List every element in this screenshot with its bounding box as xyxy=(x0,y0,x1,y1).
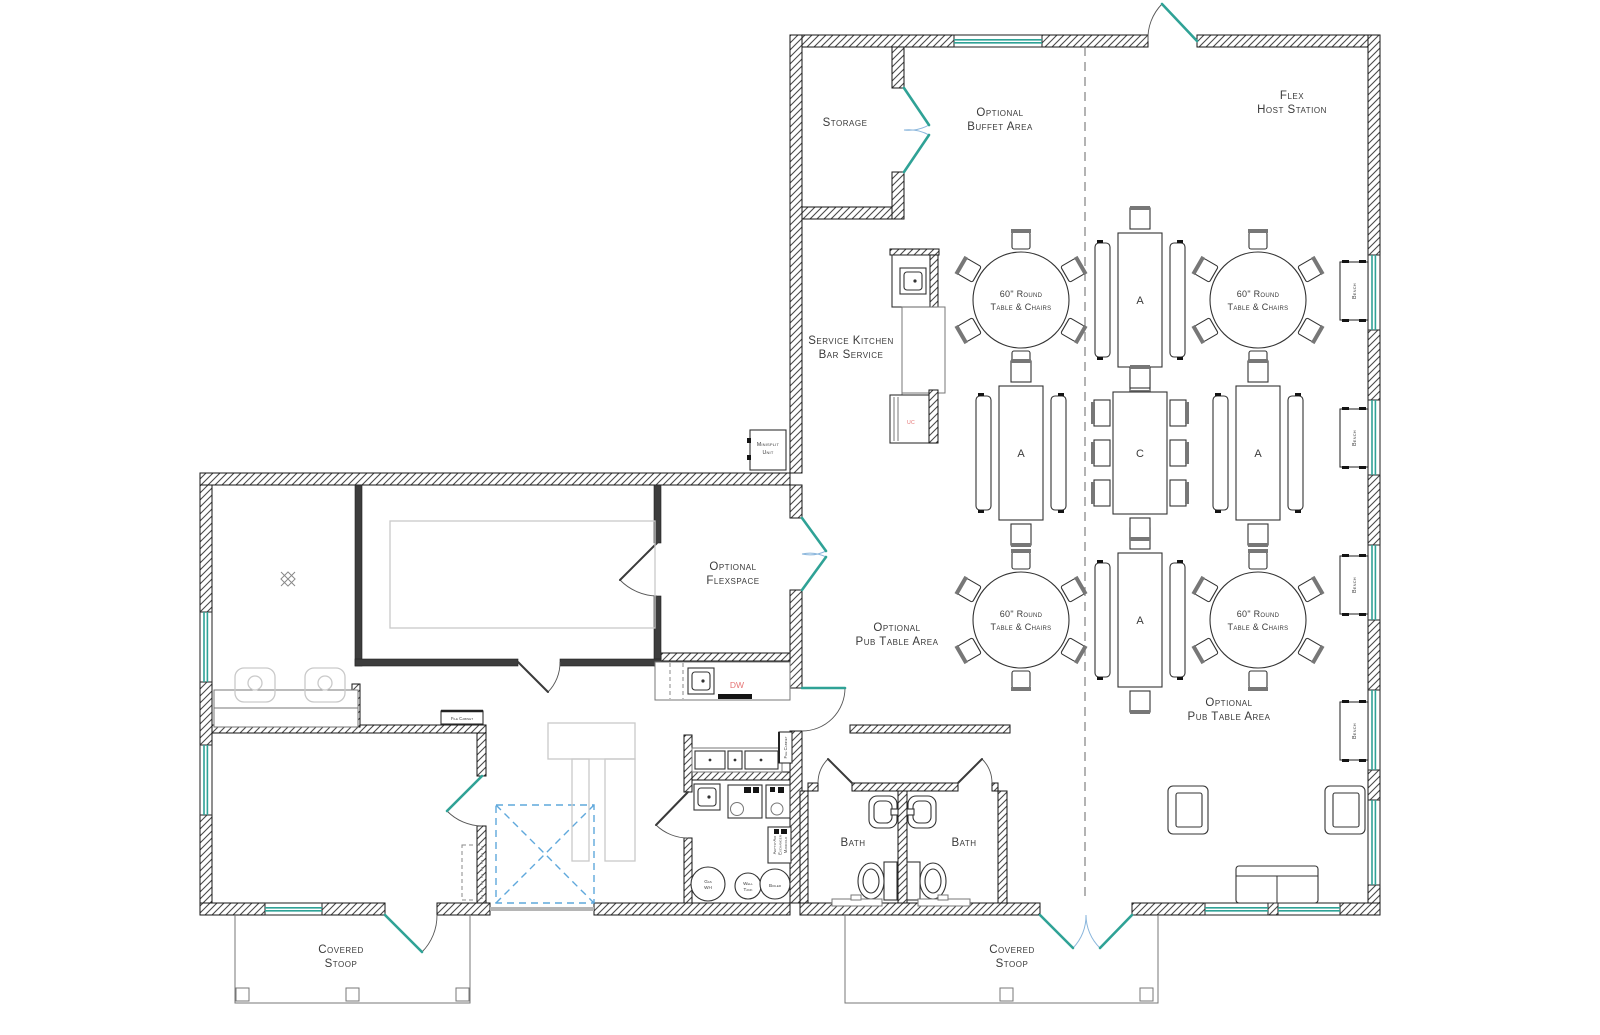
label-servicekitchen-2: Bar Service xyxy=(819,349,884,361)
bar-sink xyxy=(900,268,926,294)
bench-4-label: Bench xyxy=(1352,723,1358,739)
door-mechanical-room xyxy=(656,792,688,838)
label-stoop-left-2: Stoop xyxy=(325,958,358,970)
post xyxy=(236,988,249,1001)
post xyxy=(456,988,469,1001)
undercounter-label: UC xyxy=(907,420,915,426)
appliance-2 xyxy=(766,785,790,818)
round-table-2-label-1: 60" Round xyxy=(1237,289,1280,299)
round-table-1 xyxy=(955,229,1088,371)
label-flexhost-2: Host Station xyxy=(1257,104,1327,116)
appliance-1 xyxy=(728,785,762,818)
sofa xyxy=(1236,866,1318,903)
label-bath-left: Bath xyxy=(840,837,865,849)
exterior-walls xyxy=(200,35,1380,915)
mechanical-room xyxy=(691,732,792,901)
table-a-4-letter: A xyxy=(1136,615,1144,627)
label-flexspace-2: Flexspace xyxy=(706,575,759,587)
window-left-1 xyxy=(200,612,212,682)
label-flexhost-1: Flex xyxy=(1280,90,1304,102)
door-flexspace-bottom xyxy=(518,662,560,692)
gas-wh-label-1: Gas xyxy=(704,879,712,884)
minisplit-label-2: Unit xyxy=(763,450,774,456)
window-bottom-dining-2 xyxy=(1278,903,1340,915)
round-table-1-label-2: Table & Chairs xyxy=(991,302,1052,312)
table-a-1-letter: A xyxy=(1136,295,1144,307)
gas-water-heater xyxy=(691,867,725,901)
window-right-1 xyxy=(1368,255,1380,330)
armchair-2 xyxy=(1325,786,1365,834)
label-servicekitchen-1: Service Kitchen xyxy=(808,335,893,347)
well-tank xyxy=(735,873,761,899)
double-door-stoop-right xyxy=(1040,915,1132,948)
ghost-desks xyxy=(548,723,635,861)
round-table-3 xyxy=(955,549,1088,691)
label-pub-right-1: Optional xyxy=(1205,697,1252,709)
file-cabinet-label: File Cabinet xyxy=(451,716,473,721)
gas-wh-label-2: WH xyxy=(704,885,712,890)
label-pub-right-2: Pub Table Area xyxy=(1188,711,1271,723)
window-bottom-left-wing xyxy=(265,903,322,915)
door-bath-left xyxy=(818,759,852,783)
door-hall-to-dining xyxy=(802,688,845,731)
door-lower-left-room xyxy=(447,776,482,826)
well-tank-label-1: Well xyxy=(743,881,753,886)
armchair-1 xyxy=(1168,786,1208,834)
bench-3-label: Bench xyxy=(1352,577,1358,593)
kitchen-sink xyxy=(688,668,714,694)
ghost-table xyxy=(390,521,655,628)
label-bath-right: Bath xyxy=(951,837,976,849)
bench-1-label: Bench xyxy=(1352,283,1358,299)
door-bath-right xyxy=(958,759,992,783)
utility-sink xyxy=(694,784,720,810)
double-door-storage xyxy=(904,88,929,172)
double-door-flexspace-dining xyxy=(802,518,826,590)
air-exchanger-label-3: Manifold xyxy=(783,836,788,853)
window-bottom-dining-1 xyxy=(1205,903,1268,915)
double-sink-counter xyxy=(692,748,782,772)
label-stoop-left-1: Covered xyxy=(318,944,364,956)
well-tank-label-2: Tank xyxy=(744,887,753,892)
bath-sink-left xyxy=(869,796,898,828)
toilet-left xyxy=(858,862,897,900)
toilet-right xyxy=(907,862,946,900)
window-right-4 xyxy=(1368,690,1380,770)
label-pub-left-1: Optional xyxy=(873,622,920,634)
label-buffet-2: Buffet Area xyxy=(967,121,1033,133)
table-c-letter: C xyxy=(1136,448,1144,460)
round-table-1-label-1: 60" Round xyxy=(1000,289,1043,299)
optional-wall-segment xyxy=(490,907,594,911)
bath-sink-right xyxy=(907,796,936,828)
dishwasher-front xyxy=(718,694,752,699)
minisplit-label-1: Minisplit xyxy=(757,442,780,448)
optional-feature-x-box xyxy=(496,805,594,903)
window-left-2 xyxy=(200,745,212,815)
entry-door-top xyxy=(1148,4,1197,41)
label-stoop-right-1: Covered xyxy=(989,944,1035,956)
floor-plan: Storage Optional Buffet Area Flex Host S… xyxy=(0,0,1600,1035)
bar-counter xyxy=(902,307,945,393)
post xyxy=(1140,988,1153,1001)
post xyxy=(346,988,359,1001)
table-a-3-letter: A xyxy=(1254,448,1262,460)
label-pub-left-2: Pub Table Area xyxy=(856,636,939,648)
window-right-2 xyxy=(1368,400,1380,475)
door-flexspace-side xyxy=(620,543,657,596)
bench-2-label: Bench xyxy=(1352,430,1358,446)
label-stoop-right-2: Stoop xyxy=(996,958,1029,970)
round-table-4-label-2: Table & Chairs xyxy=(1228,622,1289,632)
post xyxy=(1000,988,1013,1001)
air-exchanger-label-1: Air-to-Air xyxy=(772,835,777,854)
round-table-4 xyxy=(1192,549,1325,691)
window-right-5 xyxy=(1368,800,1380,885)
counter-with-chairs xyxy=(214,668,358,727)
labels: Storage Optional Buffet Area Flex Host S… xyxy=(318,90,1358,970)
ceiling-fan-icon xyxy=(281,572,295,586)
air-exchanger-label-2: Exchanger xyxy=(778,834,783,855)
table-a-2-letter: A xyxy=(1017,448,1025,460)
label-storage: Storage xyxy=(823,117,868,129)
window-right-3 xyxy=(1368,545,1380,620)
file-cabinet-vertical-label: File Cabinet xyxy=(783,736,788,758)
round-table-2 xyxy=(1192,229,1325,371)
round-table-2-label-2: Table & Chairs xyxy=(1228,302,1289,312)
kitchenette xyxy=(655,662,790,700)
round-table-3-label-2: Table & Chairs xyxy=(991,622,1052,632)
label-flexspace-1: Optional xyxy=(709,561,756,573)
round-table-4-label-1: 60" Round xyxy=(1237,609,1280,619)
dishwasher-label: DW xyxy=(730,680,744,690)
service-kitchen-bar xyxy=(890,249,945,443)
round-table-3-label-1: 60" Round xyxy=(1000,609,1043,619)
label-buffet-1: Optional xyxy=(976,107,1023,119)
window-top-buffet xyxy=(954,35,1042,47)
door-left-wing-stoop xyxy=(385,915,437,952)
boiler-label: Boiler xyxy=(769,883,782,888)
